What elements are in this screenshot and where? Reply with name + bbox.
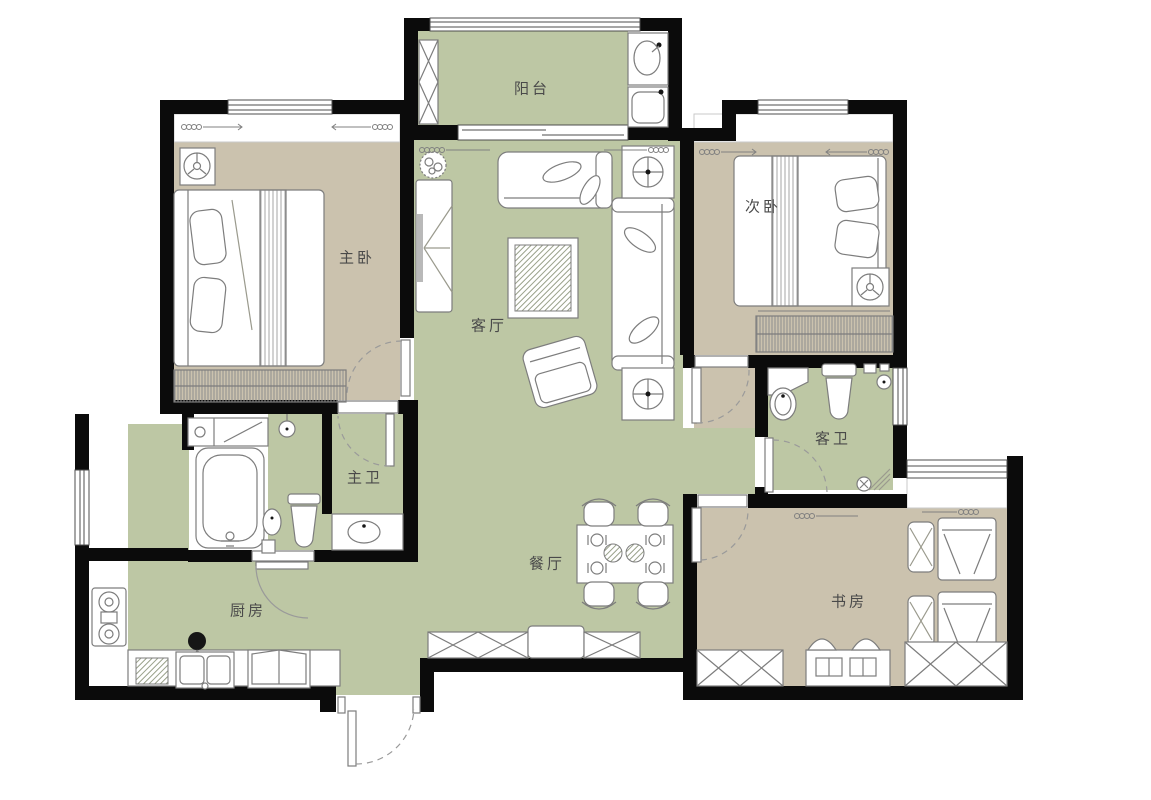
room-label-living-room: 客厅 (471, 315, 507, 336)
hallway-floor-2 (683, 428, 755, 494)
second-bedroom-window-icon (758, 100, 848, 114)
coffee-table-icon (508, 238, 578, 318)
wardrobe-icon (174, 370, 346, 402)
master-bedroom-curtain-band (174, 114, 400, 142)
room-label-study: 书房 (831, 591, 867, 612)
room-label-balcony: 阳台 (514, 78, 550, 99)
entry-door-swing-icon (338, 697, 420, 766)
vanity-basin-icon (332, 514, 403, 550)
floorplan-canvas: 阳台 主卧 次卧 客厅 主卫 客卫 厨房 餐厅 书房 (0, 0, 1151, 800)
side-table-lamp-icon (622, 368, 674, 420)
laundry-sink-icon (628, 33, 668, 85)
washing-machine-icon (628, 87, 668, 127)
entry-floor (332, 558, 430, 695)
wardrobe-icon (756, 311, 893, 352)
guest-bathroom-window-icon (893, 368, 907, 425)
room-label-kitchen: 厨房 (230, 600, 266, 621)
fridge-icon (248, 650, 310, 688)
kitchen-sink-icon (176, 652, 234, 689)
balcony-sliding-door-icon (458, 125, 628, 140)
room-label-dining-room: 餐厅 (529, 553, 565, 574)
dining-table-icon (577, 525, 673, 583)
study-curtain-band (907, 478, 1007, 508)
master-bedroom-window-icon (228, 100, 332, 114)
recliner-icon (908, 518, 996, 580)
balcony-window-icon (430, 18, 640, 31)
bath-shelf-icon (188, 418, 268, 446)
tv-cabinet-icon (416, 180, 452, 312)
double-bed-icon (174, 190, 324, 366)
bathtub-icon (196, 448, 264, 548)
ceiling-fixture-icon (180, 148, 215, 185)
floorplan-drawing (0, 0, 1151, 800)
washbasin-icon (770, 388, 796, 420)
second-bedroom-furniture (734, 156, 893, 352)
plant-icon (420, 152, 446, 178)
ceiling-fixture-icon (852, 268, 889, 306)
study-window-icon (907, 460, 1007, 478)
kitchen-window-icon (75, 470, 89, 545)
room-label-master-bathroom: 主卫 (347, 467, 383, 488)
stove-icon (92, 588, 126, 646)
desk-icon (806, 650, 890, 686)
room-label-second-bedroom: 次卧 (745, 196, 781, 217)
room-label-guest-bathroom: 客卫 (815, 428, 851, 449)
cutting-board-icon (136, 658, 168, 684)
storage-cabinet-icon (419, 40, 438, 124)
room-label-master-bedroom: 主卧 (339, 247, 375, 268)
hallway-floor (694, 357, 755, 430)
side-table-lamp-icon (622, 146, 674, 198)
